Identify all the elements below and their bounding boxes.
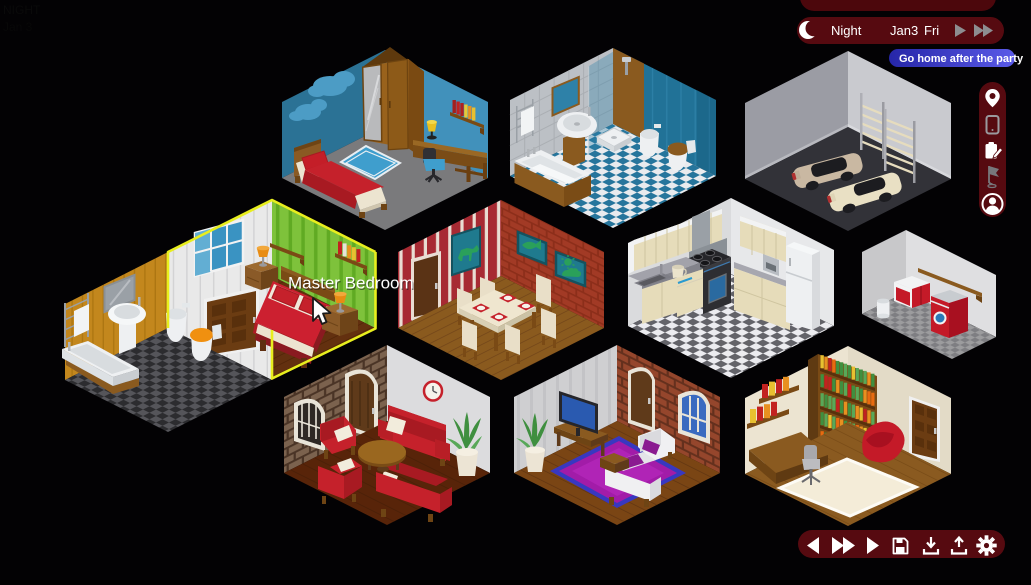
svg-text:Jan3: Jan3 bbox=[890, 23, 918, 38]
svg-text:Night: Night bbox=[831, 23, 862, 38]
svg-text:Master Bedroom: Master Bedroom bbox=[288, 274, 414, 293]
svg-text:Go home after the party: Go home after the party bbox=[899, 53, 1024, 65]
svg-text:Jan 3: Jan 3 bbox=[3, 20, 33, 34]
svg-text:NIGHT: NIGHT bbox=[3, 3, 41, 17]
svg-text:Fri: Fri bbox=[924, 23, 939, 38]
